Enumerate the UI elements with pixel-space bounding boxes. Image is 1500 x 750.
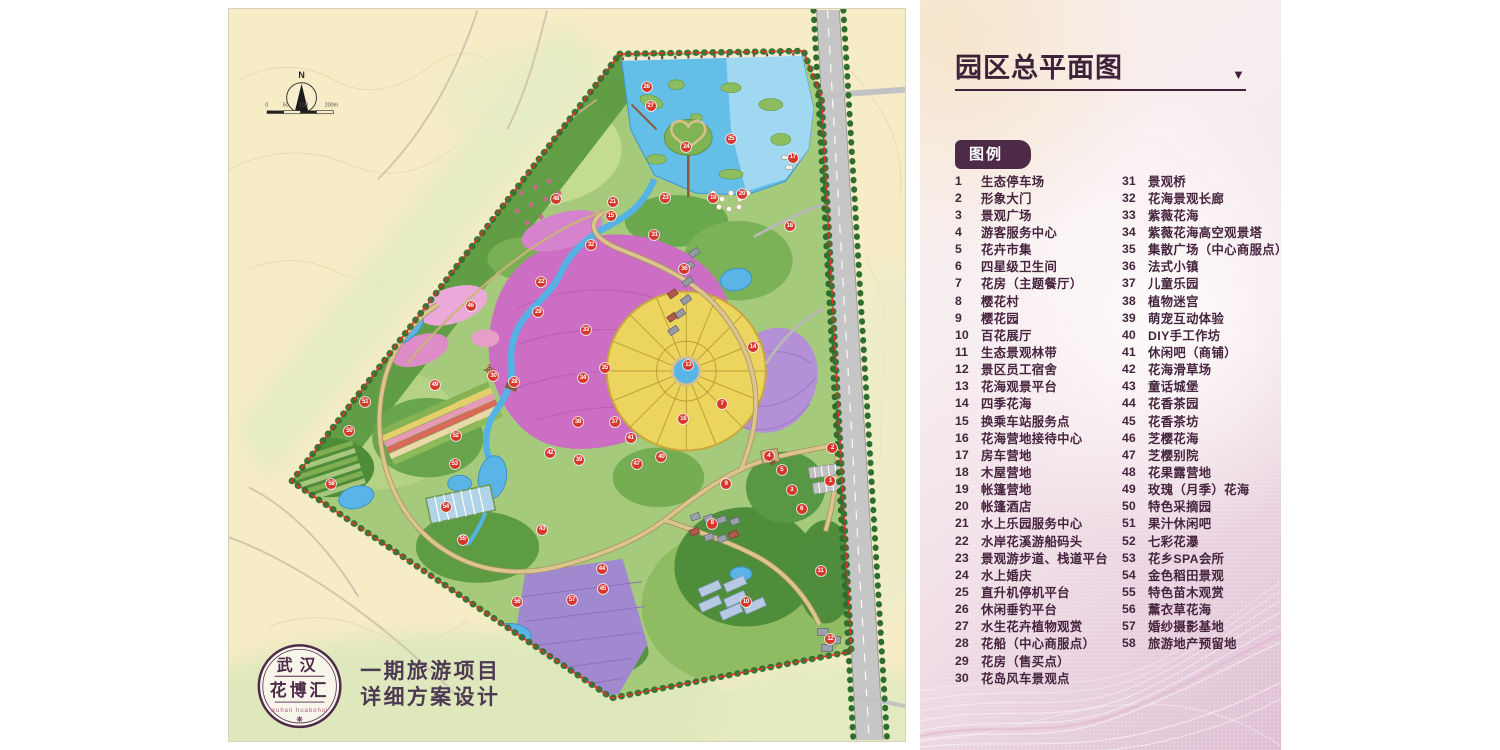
legend-item: 4游客服务中心: [955, 223, 1122, 240]
map-marker: 47: [632, 459, 642, 469]
legend-item-number: 31: [1122, 174, 1148, 188]
legend-item-number: 56: [1122, 602, 1148, 616]
map-marker: 54: [441, 502, 451, 512]
legend-item: 12景区员工宿舍: [955, 361, 1122, 378]
legend-item-label: 直升机停机平台: [981, 583, 1070, 601]
map-marker: 37: [610, 417, 620, 427]
legend-item: 39萌宠互动体验: [1122, 309, 1277, 326]
legend-item-number: 33: [1122, 208, 1148, 222]
legend-item-label: 玫瑰（月季）花海: [1148, 480, 1250, 498]
legend-item-number: 17: [955, 448, 981, 462]
legend-item-label: 童话城堡: [1148, 377, 1199, 395]
map-marker: 30: [488, 371, 498, 381]
legend-item: 1生态停车场: [955, 172, 1122, 189]
map-marker: 6: [797, 504, 807, 514]
map-marker: 11: [816, 566, 826, 576]
map-marker: 32: [586, 240, 596, 250]
legend-item-number: 50: [1122, 499, 1148, 513]
legend-item-number: 12: [955, 362, 981, 376]
legend-item-number: 7: [955, 276, 981, 290]
legend-item-label: 樱花园: [981, 309, 1019, 327]
legend-item-label: 景观广场: [981, 206, 1032, 224]
legend-item-label: 旅游地产预留地: [1148, 634, 1237, 652]
legend-item-number: 9: [955, 311, 981, 325]
map-marker: 19: [708, 193, 718, 203]
legend-item-label: 花船（中心商服点）: [981, 634, 1095, 652]
map-marker: 56: [512, 597, 522, 607]
title-rule: [955, 89, 1246, 91]
legend-item: 24水上婚庆: [955, 566, 1122, 583]
legend-item-number: 45: [1122, 414, 1148, 428]
legend-item: 7花房（主题餐厅）: [955, 275, 1122, 292]
legend-item: 6四星级卫生间: [955, 258, 1122, 275]
legend-item: 13花海观景平台: [955, 378, 1122, 395]
legend-item-label: 花果露营地: [1148, 463, 1212, 481]
map-marker: 58: [326, 479, 336, 489]
legend-item: 30花岛风车景观点: [955, 669, 1122, 686]
legend-item-number: 46: [1122, 431, 1148, 445]
legend-item-label: 特色苗木观赏: [1148, 583, 1224, 601]
legend-item: 28花船（中心商服点）: [955, 635, 1122, 652]
legend-item: 20帐篷酒店: [955, 498, 1122, 515]
legend-item: 18木屋营地: [955, 463, 1122, 480]
legend-item-label: 水岸花溪游船码头: [981, 532, 1083, 550]
map-marker: 9: [721, 479, 731, 489]
legend-item: 17房车营地: [955, 446, 1122, 463]
legend-item-label: 帐篷营地: [981, 480, 1032, 498]
legend-item-number: 3: [955, 208, 981, 222]
map-marker: 53: [450, 459, 460, 469]
page-title: 园区总平面图: [955, 46, 1123, 85]
legend-item-number: 27: [955, 619, 981, 633]
legend-item-number: 18: [955, 465, 981, 479]
map-marker: 22: [536, 277, 546, 287]
legend-item-label: 植物迷宫: [1148, 292, 1199, 310]
map-marker: 4: [764, 451, 774, 461]
legend-item: 42花海滑草场: [1122, 361, 1277, 378]
legend-item-number: 36: [1122, 259, 1148, 273]
map-marker: 51: [360, 397, 370, 407]
legend-item: 22水岸花溪游船码头: [955, 532, 1122, 549]
map-marker: 17: [788, 153, 798, 163]
legend-item: 11生态景观林带: [955, 343, 1122, 360]
legend-item-label: 景观桥: [1148, 172, 1186, 190]
map-marker: 25: [726, 134, 736, 144]
legend-item-label: 金色稻田景观: [1148, 566, 1224, 584]
map-marker: 13: [683, 360, 693, 370]
legend-item: 52七彩花瀑: [1122, 532, 1277, 549]
map-marker: 44: [597, 564, 607, 574]
map-marker: 33: [581, 325, 591, 335]
map-marker: 36: [679, 264, 689, 274]
legend-item: 2形象大门: [955, 189, 1122, 206]
legend-item-number: 40: [1122, 328, 1148, 342]
map-marker: 21: [608, 197, 618, 207]
legend-item-number: 55: [1122, 585, 1148, 599]
map-marker: 26: [642, 82, 652, 92]
legend-item: 3景观广场: [955, 206, 1122, 223]
chevron-down-icon[interactable]: ▼: [1232, 67, 1245, 82]
legend-item-number: 43: [1122, 379, 1148, 393]
legend-panel: 园区总平面图 ▼ 图例 1生态停车场2形象大门3景观广场4游客服务中心5花卉市集…: [920, 0, 1281, 750]
map-marker: 57: [567, 595, 577, 605]
legend-item: 46芝樱花海: [1122, 429, 1277, 446]
legend-item-number: 37: [1122, 276, 1148, 290]
map-marker: 1: [825, 476, 835, 486]
map-marker: 50: [344, 426, 354, 436]
map-marker: 2: [827, 443, 837, 453]
legend-item-number: 13: [955, 379, 981, 393]
legend-item-label: 花乡SPA会所: [1148, 549, 1224, 567]
legend-item: 23景观游步道、栈道平台: [955, 549, 1122, 566]
map-marker: 20: [737, 189, 747, 199]
map-marker: 34: [578, 373, 588, 383]
legend-item-number: 29: [955, 654, 981, 668]
legend-item-label: 游客服务中心: [981, 223, 1057, 241]
map-marker: 45: [598, 584, 608, 594]
map-marker: 31: [649, 230, 659, 240]
legend-item-label: DIY手工作坊: [1148, 326, 1221, 344]
legend-item-number: 42: [1122, 362, 1148, 376]
map-markers: 1234567891011121314151617181920212223242…: [229, 9, 905, 741]
map-marker: 43: [537, 525, 547, 535]
legend-item-number: 39: [1122, 311, 1148, 325]
legend-item-number: 4: [955, 225, 981, 239]
legend-item-label: 景观游步道、栈道平台: [981, 549, 1108, 567]
legend-item-number: 5: [955, 242, 981, 256]
legend-item-label: 萌宠互动体验: [1148, 309, 1224, 327]
map-marker: 29: [533, 307, 543, 317]
legend-item-number: 48: [1122, 465, 1148, 479]
legend-item-label: 百花展厅: [981, 326, 1032, 344]
legend-item-label: 法式小镇: [1148, 257, 1199, 275]
map-marker: 5: [777, 465, 787, 475]
legend-item-number: 35: [1122, 242, 1148, 256]
legend-item: 55特色苗木观赏: [1122, 583, 1277, 600]
legend-item: 45花香茶坊: [1122, 412, 1277, 429]
map-marker: 7: [717, 399, 727, 409]
map-marker: 27: [646, 101, 656, 111]
legend-item-label: 花岛风车景观点: [981, 669, 1070, 687]
legend-item-number: 15: [955, 414, 981, 428]
legend-item: 51果汁休闲吧: [1122, 515, 1277, 532]
legend-item: 16花海营地接待中心: [955, 429, 1122, 446]
legend-item-number: 38: [1122, 294, 1148, 308]
legend-item-label: 生态停车场: [981, 172, 1045, 190]
legend-item: 25直升机停机平台: [955, 583, 1122, 600]
legend-item-number: 20: [955, 499, 981, 513]
legend-item-number: 53: [1122, 551, 1148, 565]
legend-item-label: 花海营地接待中心: [981, 429, 1083, 447]
legend-item-label: 帐篷酒店: [981, 497, 1032, 515]
legend-item: 34紫薇花海高空观景塔: [1122, 223, 1277, 240]
legend-item: 15换乘车站服务点: [955, 412, 1122, 429]
map-marker: 41: [626, 433, 636, 443]
legend-item: 19帐篷营地: [955, 481, 1122, 498]
legend-item: 29花房（售买点）: [955, 652, 1122, 669]
legend-item: 37儿童乐园: [1122, 275, 1277, 292]
legend-item: 5花卉市集: [955, 241, 1122, 258]
legend-item-label: 花房（主题餐厅）: [981, 274, 1083, 292]
legend-item: 33紫薇花海: [1122, 206, 1277, 223]
legend-item: 35集散广场（中心商服点）: [1122, 241, 1277, 258]
legend-item-label: 花香茶园: [1148, 394, 1199, 412]
legend-item-label: 紫薇花海高空观景塔: [1148, 223, 1262, 241]
legend-item-label: 景区员工宿舍: [981, 360, 1057, 378]
legend-item: 31景观桥: [1122, 172, 1277, 189]
legend-item-label: 花房（售买点）: [981, 652, 1070, 670]
legend-item-number: 11: [955, 345, 981, 359]
map-marker: 14: [748, 342, 758, 352]
legend-item: 49玫瑰（月季）花海: [1122, 481, 1277, 498]
legend-item-label: 换乘车站服务点: [981, 412, 1070, 430]
legend-item-number: 1: [955, 174, 981, 188]
map-marker: 39: [574, 455, 584, 465]
legend-list: 1生态停车场2形象大门3景观广场4游客服务中心5花卉市集6四星级卫生间7花房（主…: [955, 172, 1277, 686]
legend-item: 58旅游地产预留地: [1122, 635, 1277, 652]
legend-column-2: 31景观桥32花海景观长廊33紫薇花海34紫薇花海高空观景塔35集散广场（中心商…: [1122, 172, 1277, 686]
legend-item-label: 集散广场（中心商服点）: [1148, 240, 1281, 258]
legend-item-number: 21: [955, 516, 981, 530]
legend-item-label: 紫薇花海: [1148, 206, 1199, 224]
legend-item-number: 25: [955, 585, 981, 599]
legend-item-label: 花卉市集: [981, 240, 1032, 258]
map-marker: 28: [509, 377, 519, 387]
legend-item-label: 特色采摘园: [1148, 497, 1212, 515]
legend-item-number: 41: [1122, 345, 1148, 359]
legend-item-number: 52: [1122, 534, 1148, 548]
legend-item-number: 57: [1122, 619, 1148, 633]
legend-item-label: 水上乐园服务中心: [981, 514, 1083, 532]
legend-item: 14四季花海: [955, 395, 1122, 412]
legend-item-number: 19: [955, 482, 981, 496]
legend-item-label: 儿童乐园: [1148, 274, 1199, 292]
legend-item: 36法式小镇: [1122, 258, 1277, 275]
map-marker: 15: [606, 211, 616, 221]
legend-item: 48花果露营地: [1122, 463, 1277, 480]
map-marker: 23: [660, 193, 670, 203]
legend-item-number: 6: [955, 259, 981, 273]
legend-item-number: 10: [955, 328, 981, 342]
legend-item-number: 47: [1122, 448, 1148, 462]
map-marker: 46: [466, 301, 476, 311]
legend-item-label: 花海滑草场: [1148, 360, 1212, 378]
legend-item-label: 花海观景平台: [981, 377, 1057, 395]
legend-item-label: 四星级卫生间: [981, 257, 1057, 275]
legend-item-label: 休闲垂钓平台: [981, 600, 1057, 618]
legend-item: 38植物迷宫: [1122, 292, 1277, 309]
legend-item: 40DIY手工作坊: [1122, 326, 1277, 343]
legend-item-label: 芝樱别院: [1148, 446, 1199, 464]
legend-item-label: 花香茶坊: [1148, 412, 1199, 430]
legend-item: 26休闲垂钓平台: [955, 601, 1122, 618]
legend-item-number: 44: [1122, 396, 1148, 410]
legend-item-label: 形象大门: [981, 189, 1032, 207]
map-marker: 24: [681, 142, 691, 152]
map-marker: 18: [785, 221, 795, 231]
legend-item-label: 休闲吧（商铺）: [1148, 343, 1237, 361]
map-panel: N 0 50 100 200m 武汉 花博汇 wuhan huabohui ❋ …: [228, 8, 906, 742]
map-marker: 16: [678, 414, 688, 424]
legend-item: 57婚纱摄影基地: [1122, 618, 1277, 635]
legend-item-number: 28: [955, 636, 981, 650]
legend-item-label: 花海景观长廊: [1148, 189, 1224, 207]
legend-column-1: 1生态停车场2形象大门3景观广场4游客服务中心5花卉市集6四星级卫生间7花房（主…: [955, 172, 1122, 686]
legend-item: 21水上乐园服务中心: [955, 515, 1122, 532]
legend-item-label: 薰衣草花海: [1148, 600, 1212, 618]
legend-item-label: 四季花海: [981, 394, 1032, 412]
legend-item-number: 14: [955, 396, 981, 410]
legend-header-badge: 图例: [955, 140, 1031, 169]
legend-item-number: 23: [955, 551, 981, 565]
map-marker: 55: [458, 535, 468, 545]
map-marker: 8: [707, 519, 717, 529]
map-marker: 40: [656, 452, 666, 462]
legend-item: 53花乡SPA会所: [1122, 549, 1277, 566]
legend-item-label: 木屋营地: [981, 463, 1032, 481]
legend-item-label: 果汁休闲吧: [1148, 514, 1212, 532]
legend-item-number: 24: [955, 568, 981, 582]
map-marker: 3: [787, 485, 797, 495]
legend-item-label: 婚纱摄影基地: [1148, 617, 1224, 635]
legend-item-number: 2: [955, 191, 981, 205]
legend-item-label: 生态景观林带: [981, 343, 1057, 361]
map-marker: 35: [600, 363, 610, 373]
legend-item-label: 水生花卉植物观赏: [981, 617, 1083, 635]
legend-item-number: 34: [1122, 225, 1148, 239]
legend-item-label: 水上婚庆: [981, 566, 1032, 584]
legend-item: 10百花展厅: [955, 326, 1122, 343]
map-marker: 49: [430, 380, 440, 390]
map-marker: 12: [825, 634, 835, 644]
legend-item-number: 51: [1122, 516, 1148, 530]
legend-item: 43童话城堡: [1122, 378, 1277, 395]
legend-item: 54金色稻田景观: [1122, 566, 1277, 583]
legend-item: 56薰衣草花海: [1122, 601, 1277, 618]
legend-item-number: 22: [955, 534, 981, 548]
map-marker: 42: [545, 448, 555, 458]
legend-item-number: 30: [955, 671, 981, 685]
legend-item: 32花海景观长廊: [1122, 189, 1277, 206]
legend-item-number: 49: [1122, 482, 1148, 496]
legend-item: 44花香茶园: [1122, 395, 1277, 412]
legend-item-number: 8: [955, 294, 981, 308]
legend-item-number: 26: [955, 602, 981, 616]
legend-item-label: 房车营地: [981, 446, 1032, 464]
legend-item: 9樱花园: [955, 309, 1122, 326]
legend-item: 47芝樱别院: [1122, 446, 1277, 463]
legend-item: 50特色采摘园: [1122, 498, 1277, 515]
map-marker: 52: [451, 431, 461, 441]
map-marker: 48: [551, 194, 561, 204]
legend-item-number: 32: [1122, 191, 1148, 205]
legend-item: 8樱花村: [955, 292, 1122, 309]
legend-item: 27水生花卉植物观赏: [955, 618, 1122, 635]
legend-item-label: 樱花村: [981, 292, 1019, 310]
map-marker: 38: [573, 417, 583, 427]
legend-item: 41休闲吧（商铺）: [1122, 343, 1277, 360]
legend-item-number: 16: [955, 431, 981, 445]
legend-item-number: 58: [1122, 636, 1148, 650]
legend-item-number: 54: [1122, 568, 1148, 582]
legend-item-label: 芝樱花海: [1148, 429, 1199, 447]
legend-item-label: 七彩花瀑: [1148, 532, 1199, 550]
map-marker: 10: [741, 597, 751, 607]
